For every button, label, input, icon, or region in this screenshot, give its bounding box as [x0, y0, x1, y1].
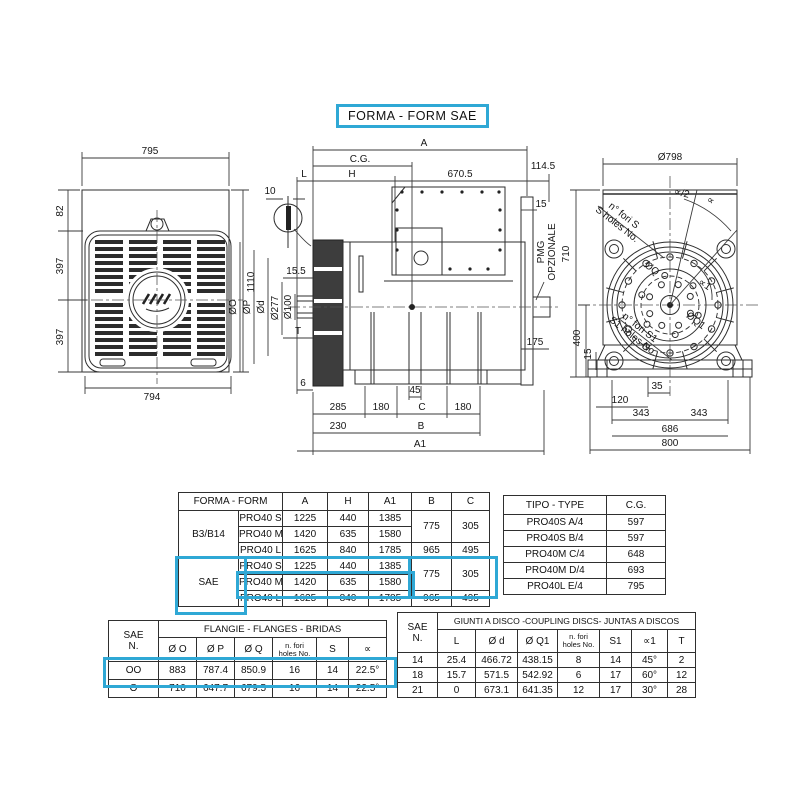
header-cell: n. fori holes No.: [558, 630, 600, 653]
cell: 30°: [632, 683, 668, 698]
cell: 14: [317, 680, 349, 698]
row-label: 14: [398, 653, 438, 668]
cell: 8: [558, 653, 600, 668]
cell: PRO40 L: [239, 591, 283, 607]
cell: PRO40 M: [239, 575, 283, 591]
table-row: PRO40M C/4648: [504, 547, 666, 563]
dim-diaP: ØP: [242, 299, 253, 314]
dim-230: 230: [330, 421, 347, 432]
cell: 1225: [283, 559, 328, 575]
cell: 6: [558, 668, 600, 683]
row-label: OO: [109, 662, 159, 680]
cell: 679.5: [235, 680, 273, 698]
table-header-row: TIPO - TYPE C.G.: [504, 496, 666, 515]
cell: PRO40 M: [239, 527, 283, 543]
cell: 710: [159, 680, 197, 698]
header-cell: S1: [600, 630, 632, 653]
cell: 1785: [369, 543, 412, 559]
table-title: GIUNTI A DISCO -COUPLING DISCS- JUNTAS A…: [438, 613, 696, 630]
dim-A1: A1: [414, 439, 427, 450]
cell: 28: [668, 683, 696, 698]
dim-15-rear: 15: [583, 348, 594, 360]
table-row: 21 0 673.1 641.35 12 17 30° 28: [398, 683, 696, 698]
cell: 693: [607, 563, 666, 579]
cell: 440: [328, 511, 369, 527]
cell: 12: [668, 668, 696, 683]
cell: 775: [412, 559, 452, 591]
dim-15-5: 15.5: [286, 266, 306, 277]
cell: 22.5°: [349, 662, 387, 680]
cell: 305: [452, 511, 490, 543]
header-cell: ∝1: [632, 630, 668, 653]
dim-B: B: [418, 421, 425, 432]
dim-114-5: 114.5: [531, 161, 556, 172]
coupling-discs-table: SAE N. GIUNTI A DISCO -COUPLING DISCS- J…: [397, 612, 696, 698]
dim-343-left: 343: [633, 408, 650, 419]
cell: 1785: [369, 591, 412, 607]
front-view-drawing: 795 794 82 397 397 1110: [55, 146, 257, 403]
cell: 17: [600, 683, 632, 698]
cell: 1625: [283, 591, 328, 607]
table-row: PRO40S A/4597: [504, 515, 666, 531]
dim-1110: 1110: [246, 271, 257, 292]
rear-view-drawing: Ø798 n° fori S S holes No. ∝/2 ∝ ØQ ∝1 Ø…: [561, 152, 760, 454]
dim-diaQ1: ØQ1: [684, 310, 708, 332]
dim-120: 120: [612, 395, 629, 406]
cell: 648: [607, 547, 666, 563]
terminal-box-screws: [395, 190, 501, 270]
dim-800: 800: [662, 438, 679, 449]
header-holes: holes No.: [558, 641, 599, 649]
dim-710: 710: [561, 245, 572, 262]
table-title: FLANGIE - FLANGES - BRIDAS: [159, 621, 387, 638]
header-cell: Ø d: [476, 630, 518, 653]
cell: PRO40L E/4: [504, 579, 607, 595]
dim-343-right: 343: [691, 408, 708, 419]
table-header-row: L Ø d Ø Q1 n. fori holes No. S1 ∝1 T: [398, 630, 696, 653]
dim-180-left: 180: [373, 402, 390, 413]
cell: 1420: [283, 575, 328, 591]
cell: 45°: [632, 653, 668, 668]
technical-drawing: 795 794 82 397 397 1110: [0, 0, 800, 470]
svg-text:OPZIONALE: OPZIONALE: [547, 223, 558, 281]
cell: 883: [159, 662, 197, 680]
dim-794: 794: [144, 392, 161, 403]
dim-400: 400: [572, 329, 583, 346]
cell: 14: [600, 653, 632, 668]
dim-dia100: Ø100: [283, 294, 294, 319]
cell: 0: [438, 683, 476, 698]
cell: 1385: [369, 511, 412, 527]
table-row: B3/B14 PRO40 S 1225 440 1385 775 305: [179, 511, 490, 527]
dim-82: 82: [55, 205, 66, 217]
header-cell: Ø P: [197, 638, 235, 662]
dim-795: 795: [142, 146, 159, 157]
cell: 965: [412, 591, 452, 607]
angle-half-label: ∝/2: [673, 186, 691, 201]
header-cell: C: [452, 493, 490, 511]
cell: 597: [607, 531, 666, 547]
row-label: O: [109, 680, 159, 698]
table-row: OO 883 787.4 850.9 16 14 22.5°: [109, 662, 387, 680]
dim-L: L: [301, 169, 307, 180]
table-row: PRO40L E/4795: [504, 579, 666, 595]
holes-S-label: n° fori S S holes No.: [593, 196, 647, 245]
header-cell: C.G.: [607, 496, 666, 515]
svg-text:PMG: PMG: [536, 240, 547, 263]
cell: 60°: [632, 668, 668, 683]
cell: 775: [412, 511, 452, 543]
dim-670-5: 670.5: [447, 169, 472, 180]
dim-dia277: Ø277: [270, 295, 281, 320]
dim-15-side: 15: [535, 199, 547, 210]
header-holes: holes No.: [273, 650, 316, 658]
table-row: 14 25.4 466.72 438.15 8 14 45° 2: [398, 653, 696, 668]
cell: PRO40S A/4: [504, 515, 607, 531]
type-cg-table: TIPO - TYPE C.G. PRO40S A/4597 PRO40S B/…: [503, 495, 666, 595]
cell: 2: [668, 653, 696, 668]
cell: 597: [607, 515, 666, 531]
header-cell: TIPO - TYPE: [504, 496, 607, 515]
dim-diaD: Ød: [256, 300, 267, 313]
table-row: PRO40S B/4597: [504, 531, 666, 547]
header-cell: Ø O: [159, 638, 197, 662]
header-cell: FORMA - FORM: [179, 493, 283, 511]
table-header-row: SAE N. FLANGIE - FLANGES - BRIDAS: [109, 621, 387, 638]
cell: 635: [328, 575, 369, 591]
cell: 1580: [369, 527, 412, 543]
flange-table: SAE N. FLANGIE - FLANGES - BRIDAS Ø O Ø …: [108, 620, 387, 698]
header-cell: Ø Q: [235, 638, 273, 662]
cell: PRO40M C/4: [504, 547, 607, 563]
section-label: B3/B14: [179, 511, 239, 559]
cell: 25.4: [438, 653, 476, 668]
cell: 22.5°: [349, 680, 387, 698]
dim-A: A: [421, 138, 428, 149]
cell: 12: [558, 683, 600, 698]
cell: 495: [452, 543, 490, 559]
dim-diaO: ØO: [228, 299, 239, 315]
header-cell: T: [668, 630, 696, 653]
dim-T: T: [295, 326, 301, 337]
holes-S1-label: n° fori S1 S1 holes No.: [607, 306, 666, 359]
corner-cell: SAE N.: [109, 621, 159, 662]
cell: 495: [452, 591, 490, 607]
cell: PRO40S B/4: [504, 531, 607, 547]
datasheet-page: FORMA - FORM SAE: [0, 0, 800, 800]
dim-H: H: [348, 169, 355, 180]
cell: 14: [317, 662, 349, 680]
cell: 635: [328, 527, 369, 543]
dim-CG: C.G.: [350, 154, 371, 165]
cell: 1225: [283, 511, 328, 527]
pmg-optional-label: PMG OPZIONALE: [536, 223, 558, 281]
shaft-pin-detail: 10: [264, 186, 311, 248]
cell: 17: [600, 668, 632, 683]
cell: 787.4: [197, 662, 235, 680]
dim-175: 175: [527, 337, 544, 348]
dim-35: 35: [651, 381, 663, 392]
cell: 16: [273, 680, 317, 698]
cell: 438.15: [518, 653, 558, 668]
cell: 840: [328, 543, 369, 559]
cell: 641.35: [518, 683, 558, 698]
cell: 466.72: [476, 653, 518, 668]
corner-n: N.: [398, 633, 437, 644]
cell: 1580: [369, 575, 412, 591]
cell: PRO40 S: [239, 559, 283, 575]
header-cell: H: [328, 493, 369, 511]
header-cell: ∝: [349, 638, 387, 662]
header-cell: A: [283, 493, 328, 511]
dim-397-upper: 397: [55, 257, 66, 274]
table-row: O 710 647.7 679.5 16 14 22.5°: [109, 680, 387, 698]
dim-6: 6: [300, 378, 306, 389]
header-cell: Ø Q1: [518, 630, 558, 653]
corner-sae: SAE: [109, 630, 158, 641]
cell: 850.9: [235, 662, 273, 680]
row-label: 21: [398, 683, 438, 698]
dim-397-lower: 397: [55, 328, 66, 345]
side-view-drawing: 10 A C.G. L H 670.5 114.5 15 PMG OPZIONA…: [228, 138, 560, 455]
dim-C: C: [418, 402, 425, 413]
table-row: 18 15.7 571.5 542.92 6 17 60° 12: [398, 668, 696, 683]
cell: PRO40M D/4: [504, 563, 607, 579]
cell: PRO40 S: [239, 511, 283, 527]
dim-686: 686: [662, 424, 679, 435]
header-cell: A1: [369, 493, 412, 511]
form-dimensions-table: FORMA - FORM A H A1 B C B3/B14 PRO40 S 1…: [178, 492, 490, 607]
dim-798: Ø798: [658, 152, 683, 163]
section-label-sae: SAE: [179, 559, 239, 607]
table-row: SAE PRO40 S 1225 440 1385 775 305: [179, 559, 490, 575]
cell: 16: [273, 662, 317, 680]
cell: 571.5: [476, 668, 518, 683]
row-label: 18: [398, 668, 438, 683]
cell: 1420: [283, 527, 328, 543]
table-row: PRO40M D/4693: [504, 563, 666, 579]
dim-285: 285: [330, 402, 347, 413]
dim-180-right: 180: [455, 402, 472, 413]
cell: 1625: [283, 543, 328, 559]
table-header-row: SAE N. GIUNTI A DISCO -COUPLING DISCS- J…: [398, 613, 696, 630]
dim-10: 10: [264, 186, 276, 197]
header-cell: B: [412, 493, 452, 511]
header-cell: S: [317, 638, 349, 662]
dim-diaQ: ØQ: [642, 260, 661, 278]
cell: 305: [452, 559, 490, 591]
cell: 965: [412, 543, 452, 559]
cell: 647.7: [197, 680, 235, 698]
dim-45: 45: [409, 385, 421, 396]
corner-n: N.: [109, 641, 158, 652]
cell: 440: [328, 559, 369, 575]
cell: 673.1: [476, 683, 518, 698]
cell: PRO40 L: [239, 543, 283, 559]
table-header-row: FORMA - FORM A H A1 B C: [179, 493, 490, 511]
cell: 795: [607, 579, 666, 595]
cell: 15.7: [438, 668, 476, 683]
corner-cell: SAE N.: [398, 613, 438, 653]
corner-sae: SAE: [398, 622, 437, 633]
cell: 1385: [369, 559, 412, 575]
cell: 840: [328, 591, 369, 607]
header-cell: L: [438, 630, 476, 653]
header-cell: n. fori holes No.: [273, 638, 317, 662]
cell: 542.92: [518, 668, 558, 683]
angle-label: ∝: [704, 194, 716, 207]
